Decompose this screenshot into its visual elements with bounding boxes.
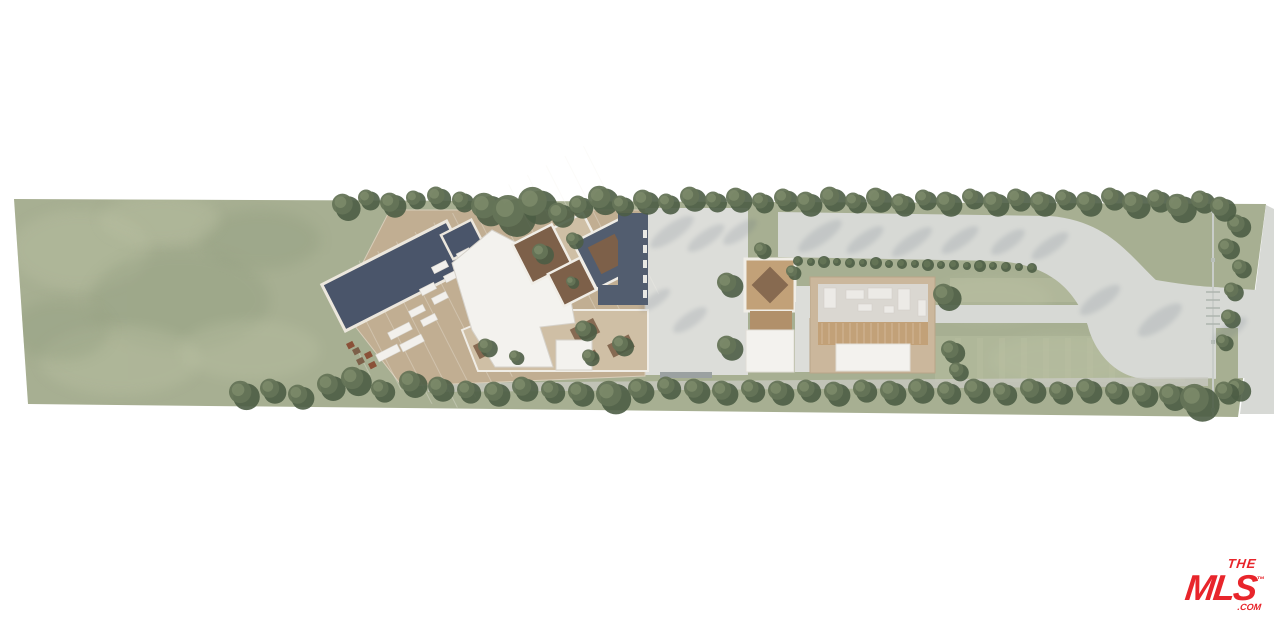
listing-image: THE MLS™ .COM — [0, 0, 1280, 620]
mls-logo: THE MLS™ .COM — [1183, 556, 1268, 612]
furniture — [858, 304, 872, 311]
guest-house — [796, 277, 935, 373]
guest-house-patio — [796, 286, 810, 318]
guest-house-wood-deck — [818, 322, 928, 345]
pavilion-roof — [746, 330, 794, 372]
furniture — [898, 289, 910, 310]
furniture — [868, 288, 892, 299]
dark-roof-slab — [598, 285, 632, 305]
mls-logo-tm: ™ — [1256, 575, 1265, 584]
guest-house-roof — [836, 344, 910, 371]
furniture — [884, 306, 894, 313]
pavilion-apron — [750, 311, 792, 330]
furniture — [846, 290, 864, 299]
furniture — [918, 300, 926, 316]
site-plan-rendering — [0, 0, 1280, 620]
furniture — [824, 288, 836, 308]
